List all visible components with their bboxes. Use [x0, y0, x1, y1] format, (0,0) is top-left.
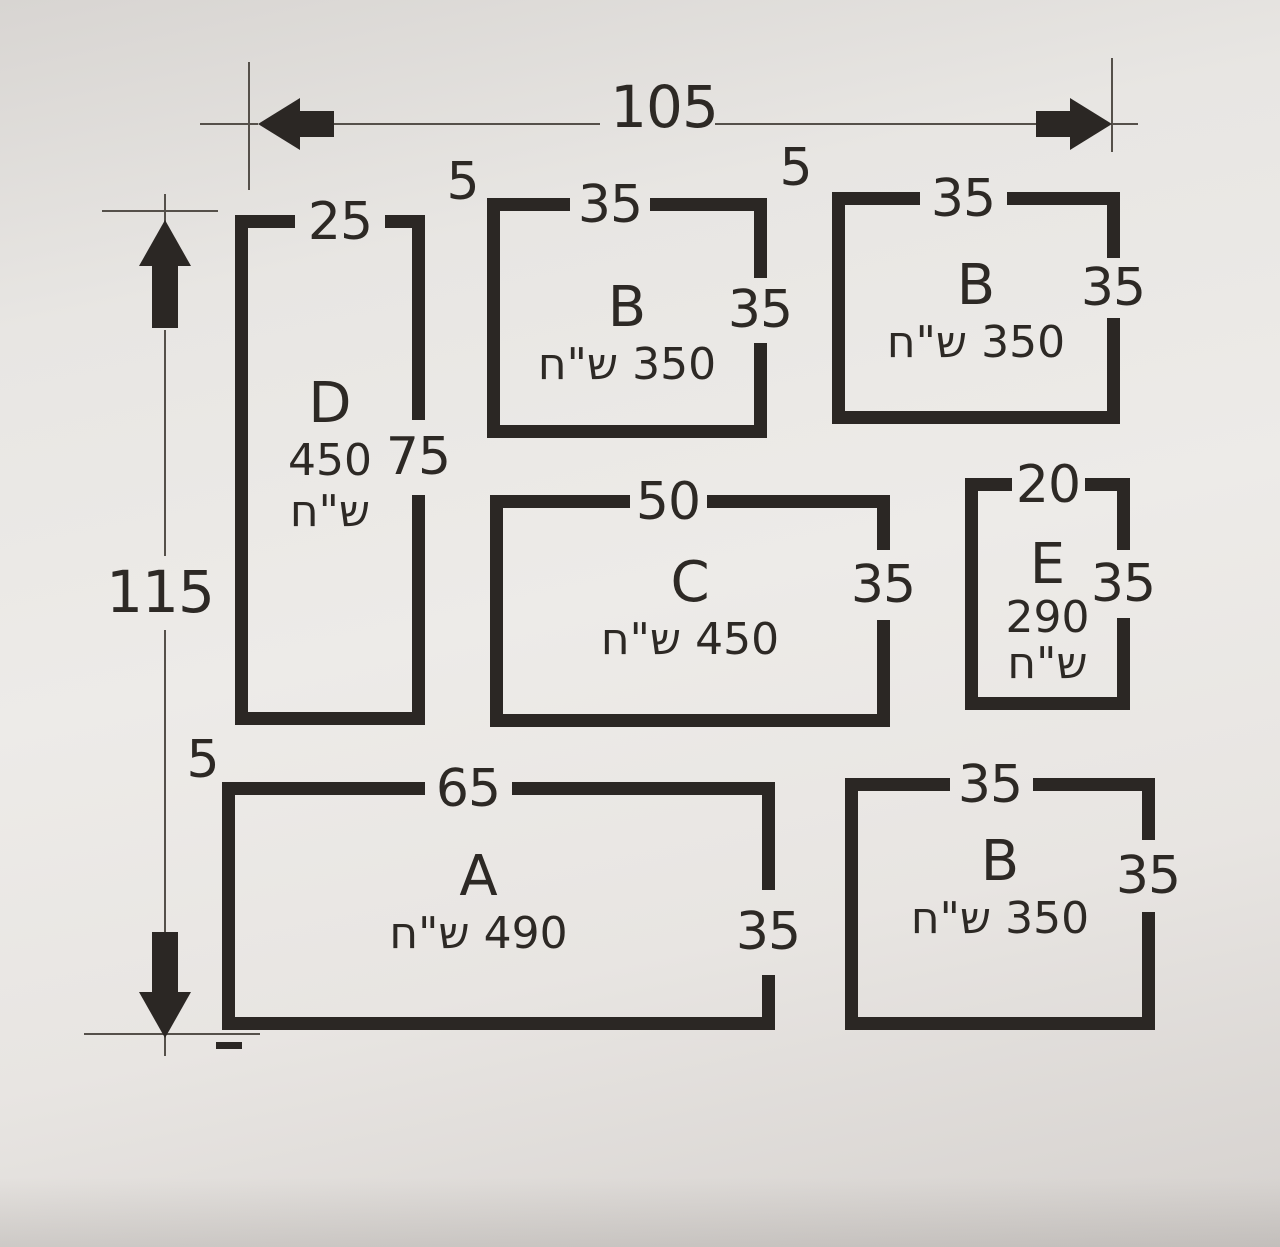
wall-segment — [762, 782, 775, 890]
wall-segment — [490, 495, 503, 727]
wall-segment — [832, 192, 920, 205]
plot-top-dimension: 20 — [1016, 455, 1080, 515]
wall-segment — [965, 697, 1130, 710]
wall-segment — [487, 425, 767, 438]
plot-price: 450 ש"ח — [601, 615, 779, 666]
plot-top-dimension: 35 — [578, 175, 642, 235]
wall-segment — [487, 198, 500, 438]
wall-segment — [412, 215, 425, 420]
plot-letter: E — [1006, 536, 1090, 595]
plot-top-dimension: 50 — [636, 472, 700, 532]
plot-price-value: 450 — [288, 436, 372, 487]
overall-width-label: 105 — [610, 73, 718, 141]
wall-segment — [707, 495, 890, 508]
tick-mark — [102, 210, 218, 212]
dimension-line — [1112, 123, 1138, 125]
wall-segment — [235, 215, 248, 725]
dimension-line — [164, 1036, 166, 1056]
tick-mark — [248, 62, 250, 190]
plot-side-dimension: 35 — [1091, 554, 1155, 614]
wall-segment — [1107, 192, 1120, 258]
plot-letter: B — [911, 830, 1089, 894]
dimension-line — [715, 123, 1038, 125]
plot-side-dimension: 35 — [1081, 258, 1145, 318]
wall-segment — [1033, 778, 1155, 791]
plot-top-dimension: 65 — [436, 759, 500, 819]
plot-price-currency: ש"ח — [288, 487, 372, 538]
plot-c: 50 35 C 450 ש"ח — [490, 495, 890, 727]
wall-segment — [1142, 912, 1155, 1030]
wall-segment — [845, 778, 858, 1030]
plot-side-dimension: 75 — [386, 427, 450, 487]
plot-side-dimension: 35 — [728, 280, 792, 340]
wall-segment — [845, 1017, 1155, 1030]
plot-letter: D — [288, 372, 372, 436]
plot-price: 490 ש"ח — [389, 909, 567, 960]
wall-segment — [222, 782, 425, 795]
wall-segment — [832, 411, 1120, 424]
plot-letter: C — [601, 551, 779, 615]
wall-segment — [235, 712, 425, 725]
wall-segment — [490, 495, 630, 508]
plot-d: 25 75 D 450 ש"ח — [235, 215, 425, 725]
wall-segment — [1117, 618, 1130, 710]
plot-price-value: 290 — [1006, 595, 1090, 641]
gap-label: 5 — [186, 730, 219, 790]
wall-segment — [222, 1017, 775, 1030]
plot-letter: A — [389, 845, 567, 909]
wall-segment — [832, 192, 845, 424]
wall-segment — [877, 620, 890, 727]
plot-price: 350 ש"ח — [911, 894, 1089, 945]
wall-segment — [490, 714, 890, 727]
dimension-line — [164, 630, 166, 936]
plot-side-dimension: 35 — [1116, 846, 1180, 906]
wall-segment — [1117, 478, 1130, 550]
gap-label: 5 — [446, 152, 479, 212]
plot-a: 65 35 A 490 ש"ח — [222, 782, 775, 1030]
wall-segment — [754, 343, 767, 438]
tick-dash — [216, 1042, 242, 1049]
plot-e: 20 35 E 290 ש"ח — [965, 478, 1130, 710]
plot-top-dimension: 25 — [308, 192, 372, 252]
wall-segment — [762, 975, 775, 1030]
dimension-line — [164, 330, 166, 556]
plot-side-dimension: 35 — [736, 902, 800, 962]
plot-letter: B — [538, 276, 716, 340]
gap-label: 5 — [779, 138, 812, 198]
plot-price: 350 ש"ח — [887, 318, 1065, 369]
paper-background: 105 115 5 5 5 25 75 D — [0, 0, 1280, 1247]
wall-segment — [965, 478, 978, 710]
wall-segment — [1107, 318, 1120, 424]
wall-segment — [754, 198, 767, 278]
plot-letter: B — [887, 254, 1065, 318]
plot-b-top-right: 35 35 B 350 ש"ח — [832, 192, 1120, 424]
plot-side-dimension: 35 — [851, 555, 915, 615]
wall-segment — [877, 495, 890, 550]
wall-segment — [845, 778, 950, 791]
wall-segment — [1142, 778, 1155, 840]
wall-segment — [650, 198, 767, 211]
plot-price-currency: ש"ח — [1006, 641, 1090, 687]
wall-segment — [412, 495, 425, 725]
plot-top-dimension: 35 — [931, 169, 995, 229]
plot-b-top-middle: 35 35 B 350 ש"ח — [487, 198, 767, 438]
overall-height-label: 115 — [106, 558, 214, 626]
plot-b-bottom-right: 35 35 B 350 ש"ח — [845, 778, 1155, 1030]
plot-top-dimension: 35 — [958, 755, 1022, 815]
wall-segment — [222, 782, 235, 1030]
wall-segment — [1007, 192, 1120, 205]
plot-price: 350 ש"ח — [538, 340, 716, 391]
wall-segment — [512, 782, 775, 795]
dimension-line — [332, 123, 600, 125]
